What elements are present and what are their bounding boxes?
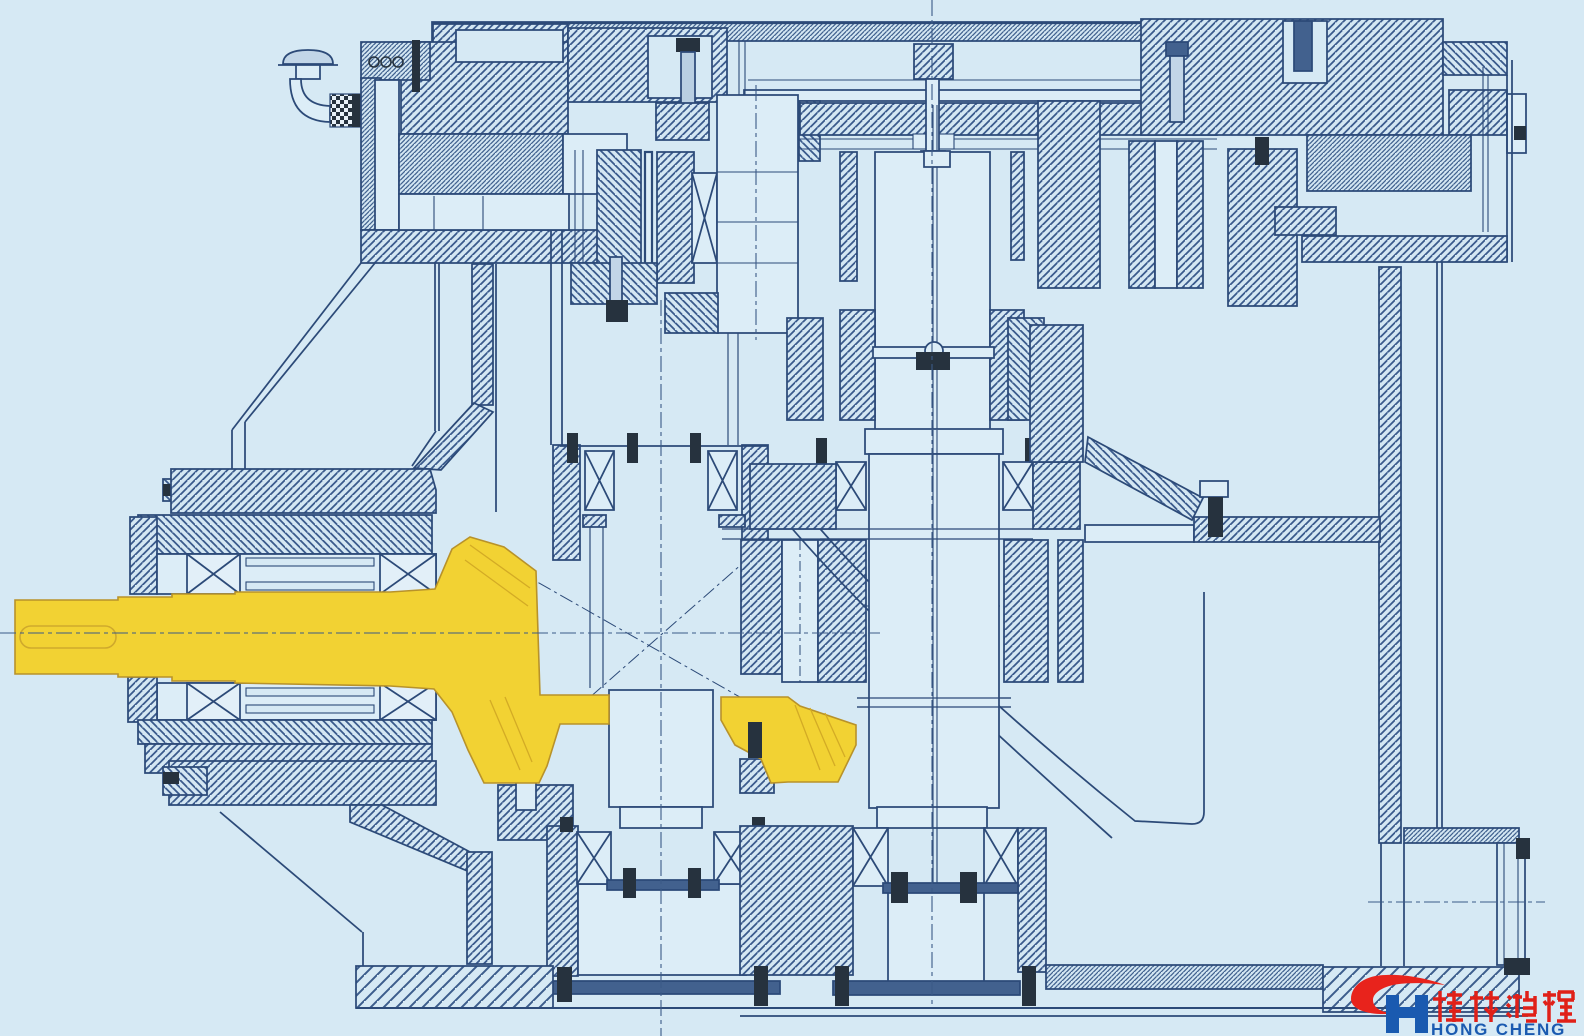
svg-text:HONG CHENG: HONG CHENG <box>1431 1020 1566 1036</box>
